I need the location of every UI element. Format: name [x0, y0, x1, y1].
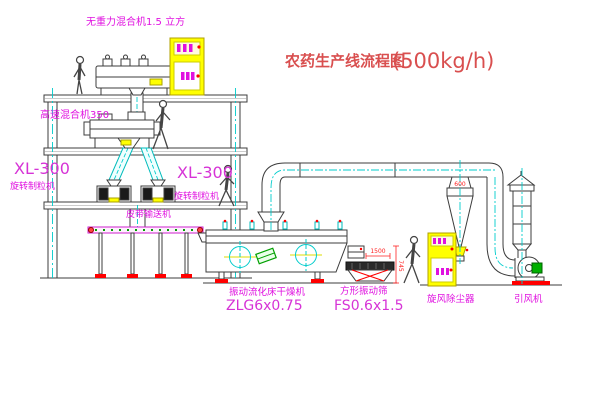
label-granulator-right-model: XL-300	[177, 163, 233, 182]
gravity-mixer-machine	[96, 55, 181, 95]
label-gravity-mixer: 无重力混合机1.5 立方	[86, 15, 185, 28]
label-high-speed-mixer: 高速混合机350	[40, 108, 109, 121]
dim-sieve-height: 745	[397, 260, 404, 272]
label-cyclone: 旋风除尘器	[427, 293, 475, 305]
dim-cyclone-inlet: 600	[454, 181, 466, 188]
belt-conveyor-machine	[88, 227, 214, 278]
worker-1	[74, 57, 85, 95]
label-granulator-right-name: 旋转制粒机	[174, 190, 219, 202]
label-granulator-left-model: XL-300	[14, 159, 70, 178]
label-fan: 引风机	[514, 293, 543, 305]
label-dryer-model: ZLG6x0.75	[226, 298, 303, 314]
spring-mounts	[223, 220, 342, 229]
diagram-title-capacity: (500kg/h)	[392, 49, 494, 73]
control-cabinet-1	[170, 38, 204, 95]
dim-sieve-length: 1500	[370, 248, 385, 255]
diagram-canvas: 农药生产线流程图 (500kg/h) 无重力混合机1.5 立方 高速混合机350…	[0, 0, 600, 403]
cad-flow-diagram: 农药生产线流程图 (500kg/h) 无重力混合机1.5 立方 高速混合机350…	[0, 0, 600, 403]
label-dryer-name: 振动流化床干燥机	[229, 286, 306, 298]
induced-draft-fan-machine	[512, 257, 550, 285]
label-belt-conveyor: 皮带输送机	[126, 208, 171, 220]
ground-lines	[40, 278, 562, 285]
granulator-left-machine	[97, 180, 131, 202]
worker-4	[404, 237, 420, 284]
label-sieve-model: FS0.6x1.5	[334, 298, 404, 314]
granulator-right-machine	[141, 180, 175, 202]
diagram-title: 农药生产线流程图	[284, 52, 405, 70]
label-sieve-name: 方形振动筛	[340, 285, 388, 297]
label-granulator-left-name: 旋转制粒机	[10, 180, 55, 192]
control-cabinet-2	[428, 233, 456, 286]
